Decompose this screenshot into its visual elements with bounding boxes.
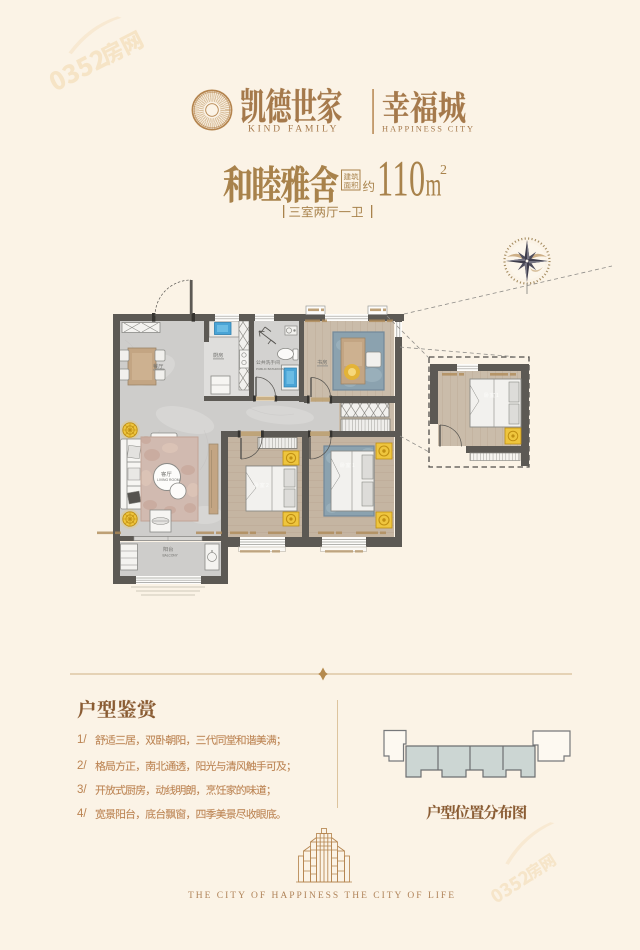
svg-text:HAPPINESS CITY: HAPPINESS CITY <box>382 125 475 134</box>
svg-text:1: 1 <box>352 463 355 469</box>
svg-text:LIVING ROOM: LIVING ROOM <box>157 478 180 482</box>
svg-text:THE CITY OF HAPPINESS THE CITY: THE CITY OF HAPPINESS THE CITY OF LIFE <box>188 891 456 901</box>
svg-text:2: 2 <box>440 163 447 178</box>
svg-text:m: m <box>426 165 442 202</box>
svg-text:1: 1 <box>496 393 499 399</box>
svg-text:PUBLIC BATHROOM: PUBLIC BATHROOM <box>256 367 285 371</box>
svg-text:KIND FAMILY: KIND FAMILY <box>248 124 339 135</box>
svg-text:2: 2 <box>266 483 269 489</box>
svg-text:3/: 3/ <box>77 784 87 796</box>
svg-text:110: 110 <box>377 151 426 207</box>
svg-text:BALCONY: BALCONY <box>163 554 179 558</box>
svg-text:2/: 2/ <box>77 760 87 772</box>
svg-text:4/: 4/ <box>77 808 87 820</box>
svg-text:1/: 1/ <box>77 734 87 746</box>
